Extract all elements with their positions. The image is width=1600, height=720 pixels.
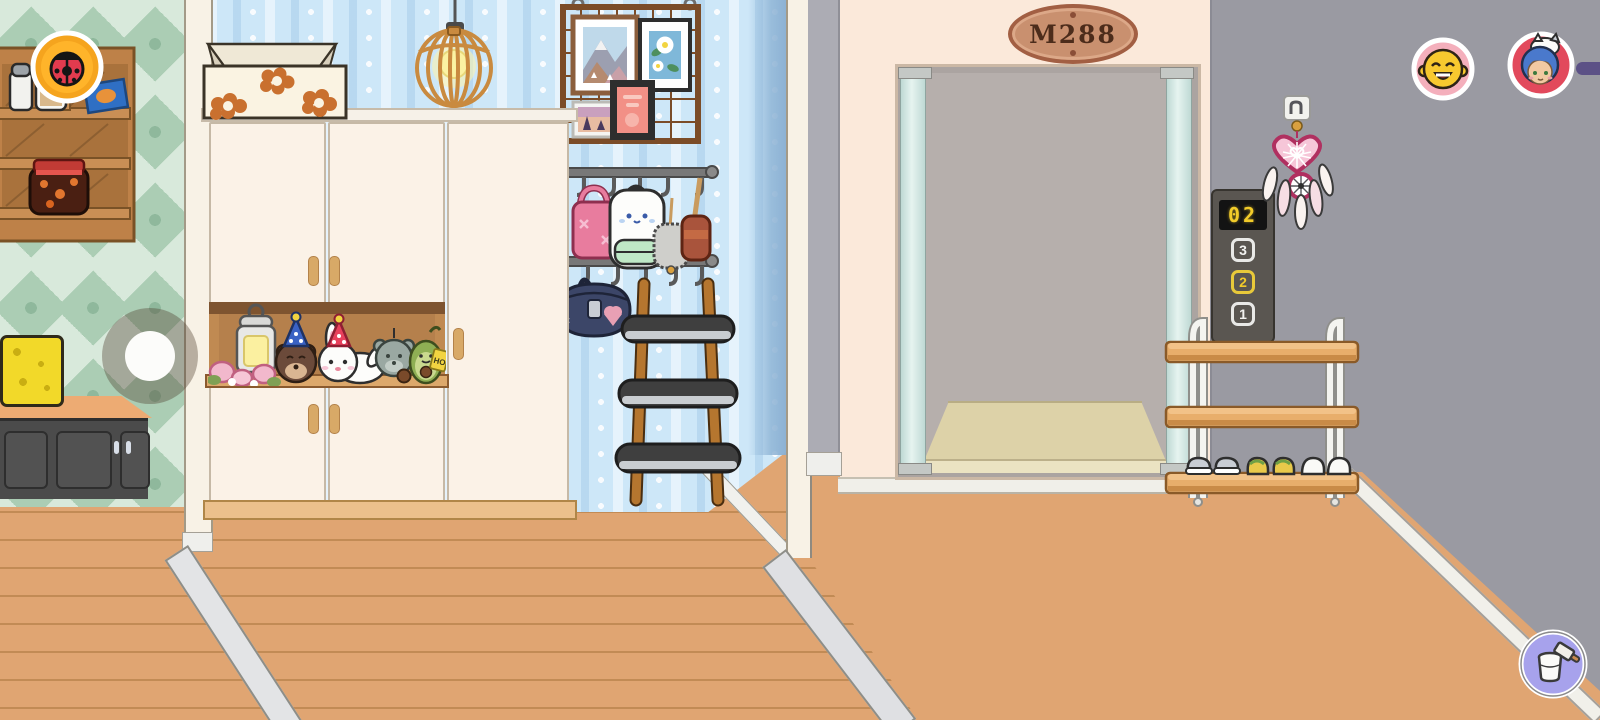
- wall-divider-elevator-side: [808, 0, 840, 458]
- elevator-button-3[interactable]: 3: [1231, 238, 1255, 262]
- leather-bag[interactable]: [682, 178, 710, 260]
- flower-lantern[interactable]: [208, 305, 281, 386]
- ladybug-menu-button[interactable]: [30, 30, 104, 104]
- glass-cap: [898, 463, 932, 475]
- picture-wall-grid: [545, 0, 705, 150]
- counter-panel: [120, 431, 150, 489]
- counter-panel: [4, 431, 48, 489]
- ladder-step: [616, 316, 740, 472]
- jam-jar[interactable]: [30, 160, 88, 214]
- elevator-sill: [920, 459, 1170, 473]
- glass-cap: [898, 67, 932, 79]
- elevator-floor: [924, 403, 1166, 461]
- dreamcatcher[interactable]: [1258, 94, 1334, 234]
- wardrobe-door[interactable]: [328, 385, 445, 503]
- touch-indicator-dot[interactable]: [125, 331, 175, 381]
- paint-mode-button[interactable]: [1518, 629, 1588, 699]
- game-scene: M288 02 3 2 1: [0, 0, 1600, 720]
- bear-plush[interactable]: [276, 313, 316, 383]
- ladybug-icon: [51, 53, 83, 85]
- room-number-label: M288: [1029, 20, 1117, 49]
- rattan-pendant-lamp: [408, 0, 500, 118]
- character-button-2[interactable]: [1507, 31, 1575, 99]
- black-counter: [0, 418, 148, 499]
- gray-sneakers[interactable]: [1186, 458, 1240, 474]
- counter-handle[interactable]: [126, 441, 131, 454]
- shoe-rack-cart: [1152, 296, 1362, 514]
- wardrobe-handle[interactable]: [308, 256, 319, 286]
- ladder-shelf: [612, 268, 742, 513]
- hallway-wallpaper-shadow: [748, 0, 790, 455]
- glass-cap: [1160, 67, 1194, 79]
- counter-handle[interactable]: [114, 441, 119, 454]
- wardrobe-handle[interactable]: [329, 404, 340, 434]
- wardrobe-handle[interactable]: [308, 404, 319, 434]
- edge-cropped-button[interactable]: [1576, 62, 1600, 75]
- sunset-picture[interactable]: [573, 102, 615, 137]
- room-number-plaque: M288: [1008, 4, 1138, 64]
- elevator-glass-left: [900, 73, 926, 465]
- plaque-screw: [1070, 50, 1076, 56]
- avocado-plush[interactable]: HOT: [410, 327, 446, 383]
- yellow-sandals[interactable]: [1248, 458, 1294, 474]
- plaque-screw: [1070, 12, 1076, 18]
- counter-panel: [56, 431, 112, 489]
- storage-box[interactable]: [200, 38, 350, 122]
- wardrobe-handle[interactable]: [453, 328, 464, 360]
- elevator-button-2[interactable]: 2: [1231, 270, 1255, 294]
- pink-poster-picture[interactable]: [610, 80, 655, 140]
- wardrobe-handle[interactable]: [329, 256, 340, 286]
- wardrobe-tall-door[interactable]: [447, 122, 569, 503]
- wardrobe-door[interactable]: [209, 385, 326, 503]
- salt-shaker[interactable]: [10, 64, 32, 110]
- wardrobe-base: [203, 500, 577, 520]
- sponge[interactable]: [0, 335, 64, 407]
- character-button-1[interactable]: [1411, 37, 1475, 101]
- plush-shelf-items: HOT: [208, 294, 446, 386]
- wardrobe-door[interactable]: [328, 122, 445, 304]
- flowers-picture[interactable]: [640, 20, 690, 90]
- wall-divider-elevator-base: [806, 452, 842, 476]
